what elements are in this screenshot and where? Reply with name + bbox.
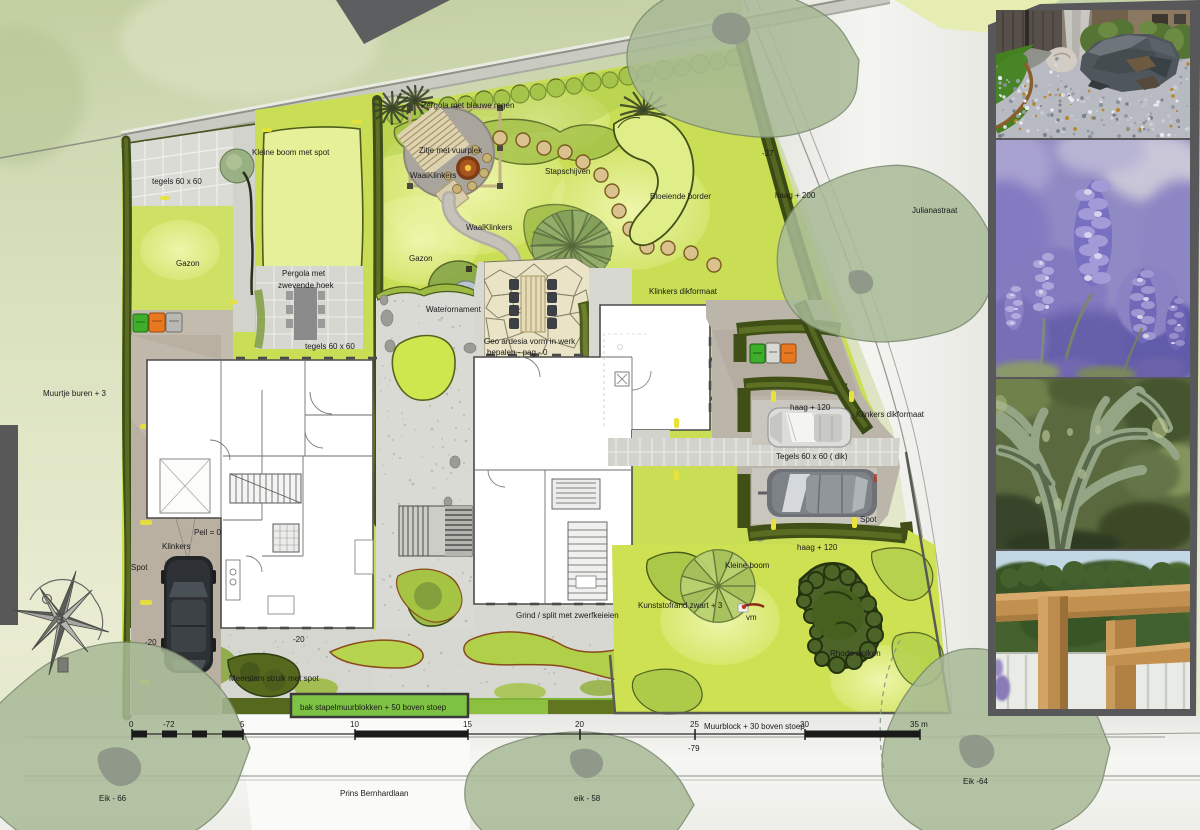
svg-text:Peil = 0: Peil = 0: [194, 528, 221, 537]
svg-text:-79: -79: [688, 744, 700, 753]
svg-text:Bloeiende border: Bloeiende border: [650, 192, 711, 201]
svg-text:Meerstam struik met spot: Meerstam struik met spot: [229, 674, 320, 683]
svg-text:tegels 60 x 60: tegels 60 x 60: [305, 342, 355, 351]
svg-text:haag + 120: haag + 120: [790, 403, 831, 412]
svg-text:Zitje met vuurplek: Zitje met vuurplek: [419, 146, 483, 155]
svg-text:WaalKlinkers: WaalKlinkers: [466, 223, 512, 232]
svg-text:-20: -20: [293, 635, 305, 644]
svg-text:tegels 60 x 60: tegels 60 x 60: [152, 177, 202, 186]
svg-text:haag + 120: haag + 120: [797, 543, 838, 552]
svg-text:Klinkers dikformaat: Klinkers dikformaat: [649, 287, 718, 296]
svg-text:haag + 200: haag + 200: [775, 191, 816, 200]
svg-text:Grind / split met zwerfkeieien: Grind / split met zwerfkeieien: [516, 611, 619, 620]
svg-text:Pergola met: Pergola met: [282, 269, 326, 278]
svg-text:0: 0: [129, 720, 134, 729]
svg-text:Prins Bernhardlaan: Prins Bernhardlaan: [340, 789, 408, 798]
svg-text:Waterornament: Waterornament: [426, 305, 482, 314]
svg-text:Pergola met blauwe regen: Pergola met blauwe regen: [421, 101, 514, 110]
svg-text:Muurtje buren + 3: Muurtje buren + 3: [43, 389, 106, 398]
svg-text:20: 20: [575, 720, 584, 729]
svg-text:Kleine boom: Kleine boom: [725, 561, 770, 570]
svg-text:Eik - 66: Eik - 66: [99, 794, 127, 803]
svg-text:Spot: Spot: [860, 515, 877, 524]
svg-text:Rhodo wolken: Rhodo wolken: [830, 649, 881, 658]
svg-text:Gazon: Gazon: [409, 254, 433, 263]
svg-text:Gazon: Gazon: [176, 259, 200, 268]
svg-text:5: 5: [240, 720, 245, 729]
svg-text:Tegels 60 x 60 ( dik): Tegels 60 x 60 ( dik): [776, 452, 848, 461]
svg-text:-27: -27: [762, 149, 774, 158]
svg-text:-72: -72: [163, 720, 175, 729]
svg-text:15: 15: [463, 720, 472, 729]
svg-text:bak stapelmuurblokken + 50 bo: bak stapelmuurblokken + 50 boven stoep: [300, 703, 447, 712]
svg-text:35 m: 35 m: [910, 720, 928, 729]
svg-text:eik - 58: eik - 58: [574, 794, 601, 803]
svg-text:Geo ardesia vorm in werk: Geo ardesia vorm in werk: [484, 337, 576, 346]
svg-text:Kunststofrand zwart + 3: Kunststofrand zwart + 3: [638, 601, 723, 610]
svg-text:Muurblock + 30 boven stoep: Muurblock + 30 boven stoep: [704, 722, 805, 731]
svg-text:Kleine boom met spot: Kleine boom met spot: [252, 148, 330, 157]
svg-text:bepalen - pag - 0: bepalen - pag - 0: [487, 348, 548, 357]
svg-text:Spot: Spot: [131, 563, 148, 572]
svg-text:10: 10: [350, 720, 359, 729]
svg-text:-20: -20: [145, 638, 157, 647]
svg-text:Stapschijven: Stapschijven: [545, 167, 590, 176]
svg-text:Eik -64: Eik -64: [963, 777, 988, 786]
svg-text:WaalKlinkers: WaalKlinkers: [410, 171, 456, 180]
svg-text:30: 30: [800, 720, 809, 729]
svg-text:vm: vm: [746, 613, 757, 622]
svg-text:Klinkers dikformaat: Klinkers dikformaat: [856, 410, 925, 419]
svg-text:25: 25: [690, 720, 699, 729]
svg-text:Klinkers: Klinkers: [162, 542, 190, 551]
svg-text:zwevende hoek: zwevende hoek: [278, 281, 335, 290]
svg-text:Julianastraat: Julianastraat: [912, 206, 958, 215]
